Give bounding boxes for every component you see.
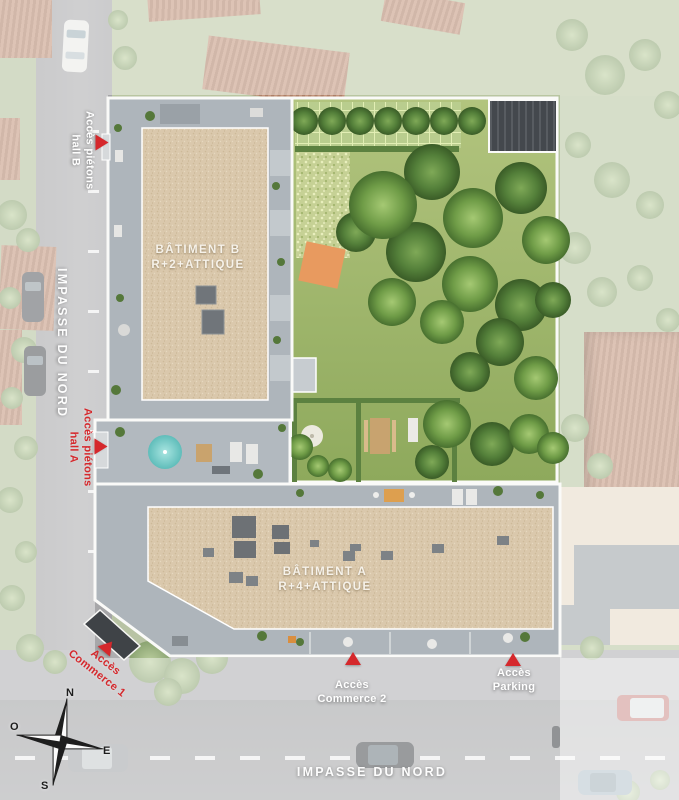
compass-south-label: S — [41, 780, 48, 792]
site-plan: IMPASSE DU NORD IMPASSE DU NORD BÂTIMENT… — [0, 0, 679, 800]
garden — [287, 98, 571, 482]
building-b-label: BÂTIMENT B R+2+ATTIQUE — [128, 243, 268, 273]
courtyard-terrace — [95, 420, 290, 484]
compass-east-label: E — [103, 745, 110, 757]
access-hall-a-label: Accès piétons hall A — [66, 402, 95, 492]
building-a-label: BÂTIMENT A R+4+ATTIQUE — [245, 565, 405, 595]
access-hall-b-marker — [96, 135, 109, 151]
access-hall-b-label: Accès piétons hall B — [68, 105, 97, 195]
building-a-floors: R+4+ATTIQUE — [245, 580, 405, 595]
access-commerce-2-marker — [345, 652, 361, 665]
compass-rose-icon — [12, 694, 108, 790]
building-a-name: BÂTIMENT A — [245, 565, 405, 580]
access-parking-marker — [505, 653, 521, 666]
building-b-name: BÂTIMENT B — [128, 243, 268, 258]
compass-west-label: O — [10, 721, 19, 733]
access-parking-label: Accès Parking — [464, 666, 564, 695]
building-b-floors: R+2+ATTIQUE — [128, 258, 268, 273]
pavilion — [290, 358, 316, 392]
orange-shade-sail — [298, 241, 345, 288]
compass-north-label: N — [66, 687, 74, 699]
street-label-bottom: IMPASSE DU NORD — [252, 764, 492, 780]
access-commerce-2-label: Accès Commerce 2 — [302, 678, 402, 707]
bike-shelter — [489, 100, 557, 152]
access-hall-a-marker — [95, 439, 108, 455]
